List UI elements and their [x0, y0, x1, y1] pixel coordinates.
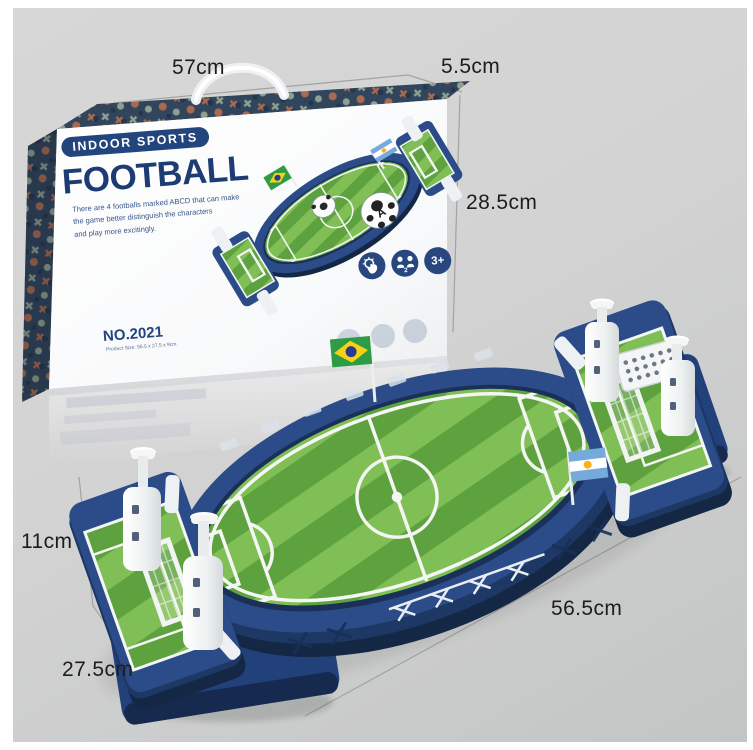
- age-3plus-badge: 3+: [423, 246, 452, 275]
- model-number: NO.2021: [102, 323, 163, 345]
- dim-label-toy-length: 56.5cm: [551, 597, 622, 621]
- players-count: 2: [403, 267, 408, 273]
- two-players-icon: 2: [390, 249, 419, 278]
- box-front-print: INDOOR SPORTS FOOTBALL There are 4 footb…: [57, 99, 467, 386]
- dim-label-box-height: 28.5cm: [466, 191, 537, 215]
- hand-play-icon: [357, 251, 386, 280]
- dim-label-box-width: 57cm: [172, 56, 225, 80]
- corner-plunger-back-left: [123, 447, 161, 571]
- dim-label-toy-depth: 27.5cm: [62, 658, 133, 682]
- dim-label-box-depth: 5.5cm: [441, 55, 500, 79]
- feature-badges: 2 3+: [357, 246, 452, 280]
- dim-label-toy-height: 11cm: [21, 530, 72, 554]
- product-photo: A: [0, 0, 753, 750]
